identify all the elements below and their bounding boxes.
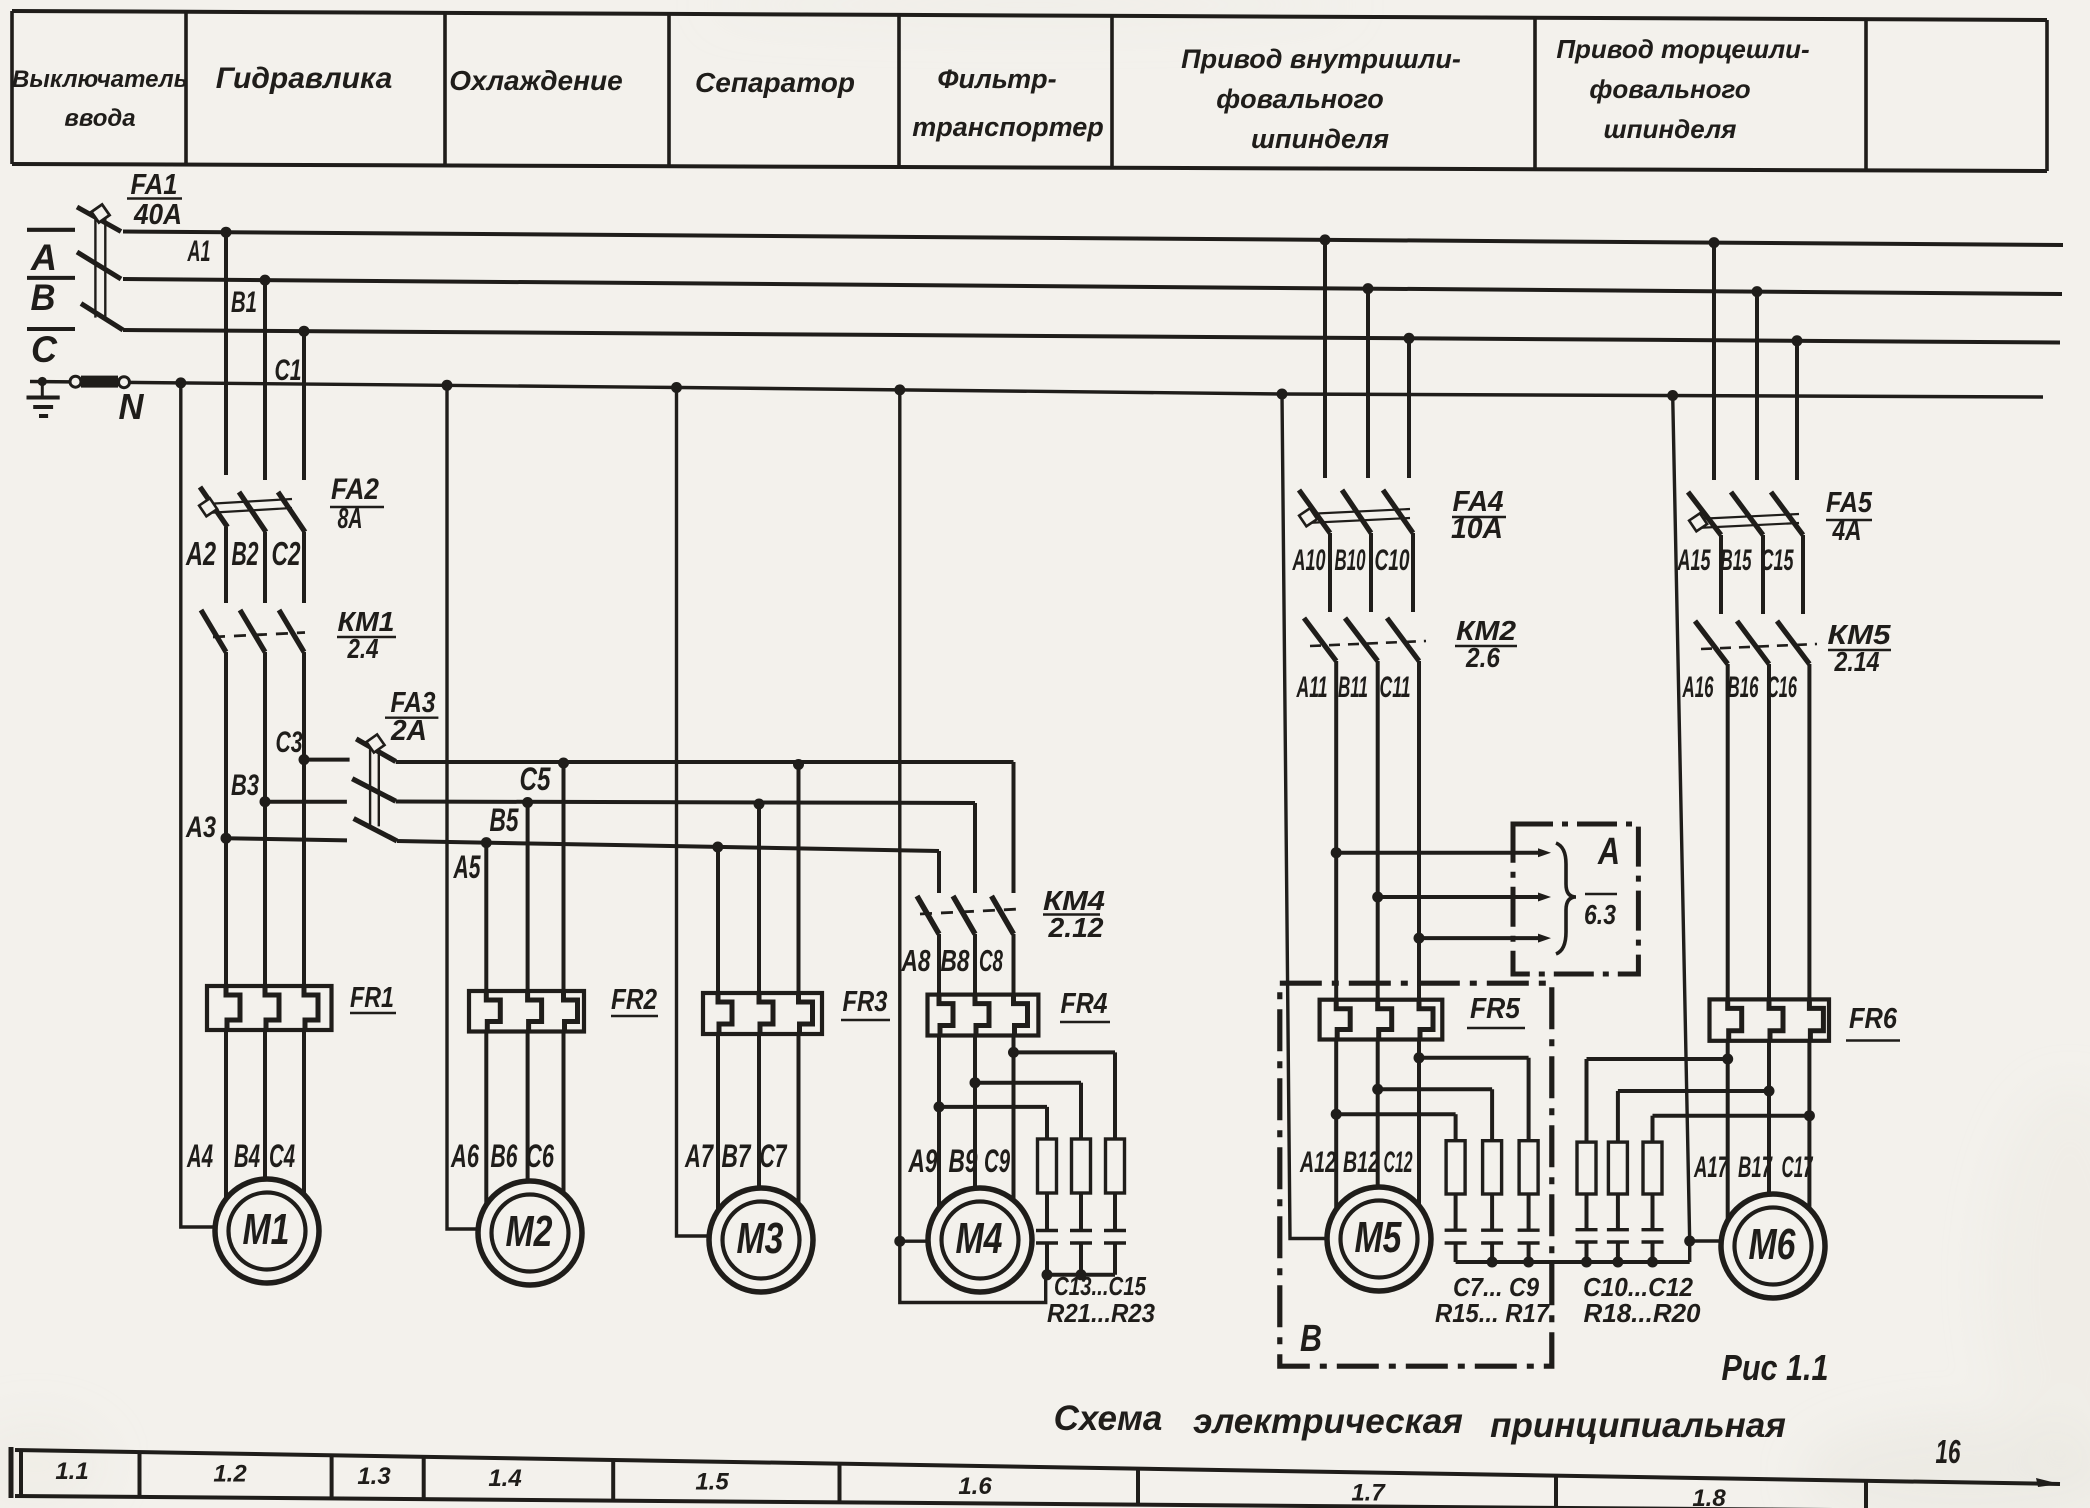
svg-text:Привод торцешли-: Привод торцешли- bbox=[1556, 34, 1809, 64]
svg-text:A3: A3 bbox=[185, 811, 216, 844]
svg-text:1.8: 1.8 bbox=[1692, 1485, 1726, 1508]
svg-text:FR1: FR1 bbox=[350, 982, 394, 1014]
svg-text:B1: B1 bbox=[231, 286, 257, 319]
svg-text:40A: 40A bbox=[133, 199, 182, 231]
svg-text:A10: A10 bbox=[1292, 544, 1326, 577]
svg-text:A1: A1 bbox=[187, 235, 211, 268]
svg-text:10A: 10A bbox=[1451, 513, 1503, 545]
svg-text:1.7: 1.7 bbox=[1351, 1480, 1386, 1507]
svg-text:B6: B6 bbox=[491, 1138, 518, 1174]
svg-text:C8: C8 bbox=[979, 943, 1003, 978]
svg-text:A17: A17 bbox=[1693, 1151, 1728, 1184]
svg-text:B4: B4 bbox=[234, 1138, 260, 1174]
svg-text:A: A bbox=[1597, 831, 1620, 873]
svg-text:C9: C9 bbox=[984, 1143, 1010, 1179]
svg-text:1.1: 1.1 bbox=[55, 1458, 88, 1485]
svg-text:1.5: 1.5 bbox=[695, 1469, 729, 1496]
svg-text:A9: A9 bbox=[908, 1143, 938, 1179]
svg-text:B7: B7 bbox=[722, 1138, 753, 1174]
svg-text:C13...C15: C13...C15 bbox=[1054, 1271, 1146, 1301]
svg-text:C7: C7 bbox=[760, 1138, 788, 1174]
svg-text:C6: C6 bbox=[526, 1138, 554, 1174]
svg-text:FR6: FR6 bbox=[1849, 1003, 1898, 1035]
svg-text:A12: A12 bbox=[1299, 1146, 1336, 1179]
svg-text:2.4: 2.4 bbox=[347, 633, 379, 664]
svg-text:R18...R20: R18...R20 bbox=[1584, 1298, 1702, 1328]
svg-text:фовального: фовального bbox=[1216, 84, 1384, 114]
svg-text:Выключатель: Выключатель bbox=[12, 66, 188, 93]
svg-text:FR4: FR4 bbox=[1061, 988, 1108, 1020]
svg-text:1.6: 1.6 bbox=[958, 1473, 992, 1500]
svg-text:М5: М5 bbox=[1355, 1213, 1402, 1262]
svg-text:R21...R23: R21...R23 bbox=[1047, 1298, 1155, 1328]
svg-text:C11: C11 bbox=[1380, 671, 1411, 704]
svg-text:FR3: FR3 bbox=[843, 986, 888, 1018]
svg-text:C12: C12 bbox=[1384, 1146, 1413, 1179]
svg-text:транспортер: транспортер bbox=[912, 112, 1103, 142]
svg-text:принципиальная: принципиальная bbox=[1490, 1406, 1786, 1445]
svg-text:A6: A6 bbox=[450, 1138, 479, 1174]
svg-text:A7: A7 bbox=[684, 1138, 714, 1174]
svg-text:Сепаратор: Сепаратор bbox=[695, 67, 855, 98]
svg-text:B: B bbox=[31, 277, 56, 318]
svg-text:C16: C16 bbox=[1767, 671, 1797, 704]
svg-text:A: A bbox=[30, 237, 57, 278]
svg-text:C4: C4 bbox=[269, 1138, 295, 1174]
svg-text:фовального: фовального bbox=[1589, 74, 1750, 104]
svg-text:B3: B3 bbox=[231, 769, 259, 802]
svg-text:B2: B2 bbox=[232, 535, 259, 572]
svg-text:B11: B11 bbox=[1338, 671, 1368, 704]
svg-text:A11: A11 bbox=[1296, 671, 1328, 704]
svg-text:B5: B5 bbox=[490, 802, 520, 838]
svg-text:2.6: 2.6 bbox=[1465, 642, 1500, 673]
svg-text:B10: B10 bbox=[1335, 544, 1366, 577]
svg-text:6.3: 6.3 bbox=[1584, 899, 1616, 930]
svg-text:A5: A5 bbox=[453, 849, 481, 885]
svg-text:Гидравлика: Гидравлика bbox=[216, 62, 393, 95]
svg-text:ввода: ввода bbox=[64, 105, 135, 132]
svg-text:1.2: 1.2 bbox=[213, 1461, 247, 1488]
svg-text:2.14: 2.14 bbox=[1834, 646, 1880, 677]
svg-text:FA1: FA1 bbox=[131, 169, 178, 201]
svg-text:Привод внутришли-: Привод внутришли- bbox=[1181, 44, 1461, 74]
svg-text:R15... R17: R15... R17 bbox=[1435, 1298, 1550, 1328]
svg-text:B12: B12 bbox=[1343, 1146, 1379, 1179]
svg-text:B15: B15 bbox=[1721, 544, 1753, 577]
svg-text:C3: C3 bbox=[276, 726, 303, 759]
svg-text:A4: A4 bbox=[186, 1138, 213, 1174]
svg-text:A8: A8 bbox=[901, 943, 931, 978]
svg-text:Фильтр-: Фильтр- bbox=[937, 64, 1056, 94]
svg-text:C5: C5 bbox=[520, 761, 552, 797]
svg-text:FR2: FR2 bbox=[611, 984, 657, 1016]
svg-text:A16: A16 bbox=[1682, 671, 1714, 704]
svg-text:C15: C15 bbox=[1761, 544, 1795, 577]
svg-text:электрическая: электрическая bbox=[1193, 1402, 1463, 1441]
svg-text:C1: C1 bbox=[275, 354, 302, 387]
svg-text:B16: B16 bbox=[1728, 671, 1759, 704]
svg-text:М6: М6 bbox=[1749, 1220, 1796, 1269]
svg-text:C2: C2 bbox=[272, 535, 301, 572]
svg-text:8A: 8A bbox=[338, 503, 363, 535]
svg-text:Охлаждение: Охлаждение bbox=[449, 65, 622, 96]
svg-text:N: N bbox=[119, 386, 145, 427]
svg-text:М3: М3 bbox=[737, 1214, 784, 1263]
svg-text:В: В bbox=[1300, 1318, 1322, 1360]
svg-text:2.12: 2.12 bbox=[1047, 912, 1103, 943]
svg-text:C: C bbox=[31, 329, 58, 370]
svg-text:1.3: 1.3 bbox=[357, 1463, 391, 1490]
svg-text:М1: М1 bbox=[243, 1205, 290, 1254]
svg-text:Рис 1.1: Рис 1.1 bbox=[1722, 1347, 1829, 1388]
svg-text:М2: М2 bbox=[506, 1207, 553, 1256]
svg-text:B8: B8 bbox=[941, 943, 971, 978]
svg-text:2A: 2A bbox=[390, 715, 427, 747]
svg-text:М4: М4 bbox=[956, 1214, 1003, 1263]
svg-text:шпинделя: шпинделя bbox=[1251, 124, 1389, 154]
svg-text:FR5: FR5 bbox=[1470, 993, 1521, 1025]
svg-text:4A: 4A bbox=[1832, 515, 1862, 547]
svg-text:16: 16 bbox=[1936, 1433, 1961, 1470]
svg-text:1.4: 1.4 bbox=[488, 1465, 521, 1492]
svg-text:FA2: FA2 bbox=[331, 473, 379, 506]
svg-text:шпинделя: шпинделя bbox=[1604, 114, 1737, 144]
svg-text:Схема: Схема bbox=[1054, 1399, 1163, 1438]
svg-text:A15: A15 bbox=[1677, 544, 1711, 577]
svg-text:C10: C10 bbox=[1375, 544, 1410, 577]
svg-text:A2: A2 bbox=[185, 535, 216, 572]
